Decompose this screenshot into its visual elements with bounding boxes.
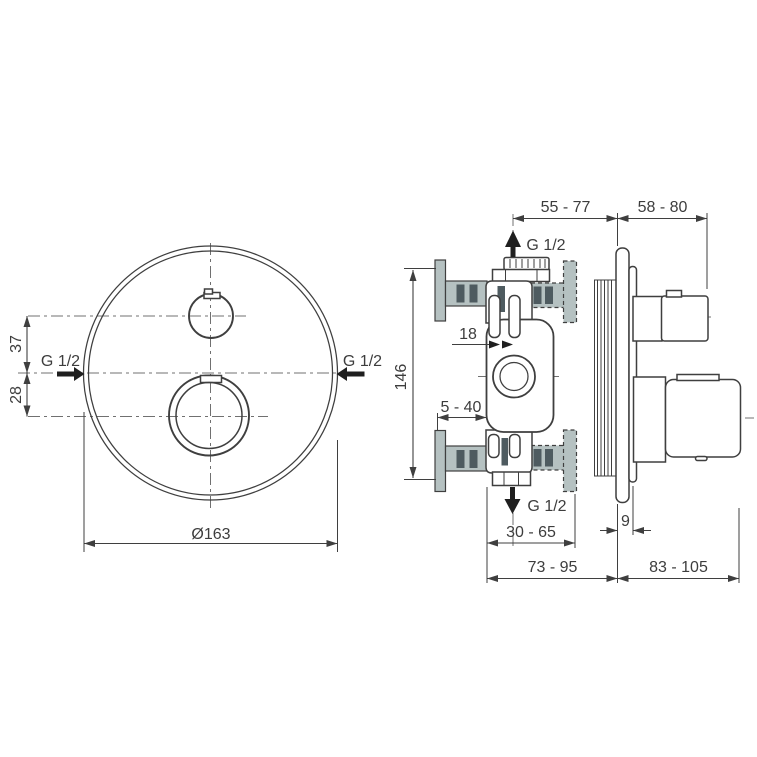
extension-sleeve — [595, 280, 617, 476]
wall-anchor-left-top — [435, 260, 487, 321]
escutcheon-plate — [616, 248, 629, 503]
volume-knob — [169, 376, 249, 456]
side-view: G 1/2 G 1/2 55 - 77 58 - 80 18 146 5 - 4… — [393, 199, 754, 583]
dim-label-5-40: 5 - 40 — [441, 399, 482, 416]
dim-label-18: 18 — [459, 326, 477, 343]
wall-anchor-right-bottom — [531, 430, 577, 492]
dim-label-diameter: Ø163 — [191, 526, 230, 543]
dim-label-28: 28 — [8, 386, 25, 404]
dim-label-9: 9 — [621, 513, 630, 530]
outlet-top-arrow-icon — [505, 231, 521, 258]
technical-drawing-canvas: 37 28 G 1/2 G 1/2 Ø163 — [0, 0, 757, 757]
dim-label-55-77: 55 - 77 — [541, 199, 591, 216]
outlet-bottom-label: G 1/2 — [527, 498, 566, 515]
outlet-top-label: G 1/2 — [526, 237, 565, 254]
outlet-bottom-arrow-icon — [505, 487, 521, 514]
wall-anchor-left-bottom — [435, 431, 487, 492]
technical-drawing: 37 28 G 1/2 G 1/2 Ø163 — [0, 0, 757, 757]
cartridge-boss-outer — [493, 356, 535, 398]
dim-label-30-65: 30 - 65 — [506, 524, 556, 541]
inlet-right-label: G 1/2 — [343, 353, 382, 370]
dim-label-37: 37 — [8, 335, 25, 353]
dim-label-73-95: 73 - 95 — [528, 559, 578, 576]
front-view: 37 28 G 1/2 G 1/2 Ø163 — [8, 243, 382, 552]
dim-label-58-80: 58 - 80 — [638, 199, 688, 216]
dim-label-83-105: 83 - 105 — [649, 559, 708, 576]
volume-handle-side — [634, 375, 741, 463]
dim-label-146: 146 — [393, 364, 410, 391]
temperature-handle-side — [633, 291, 708, 342]
